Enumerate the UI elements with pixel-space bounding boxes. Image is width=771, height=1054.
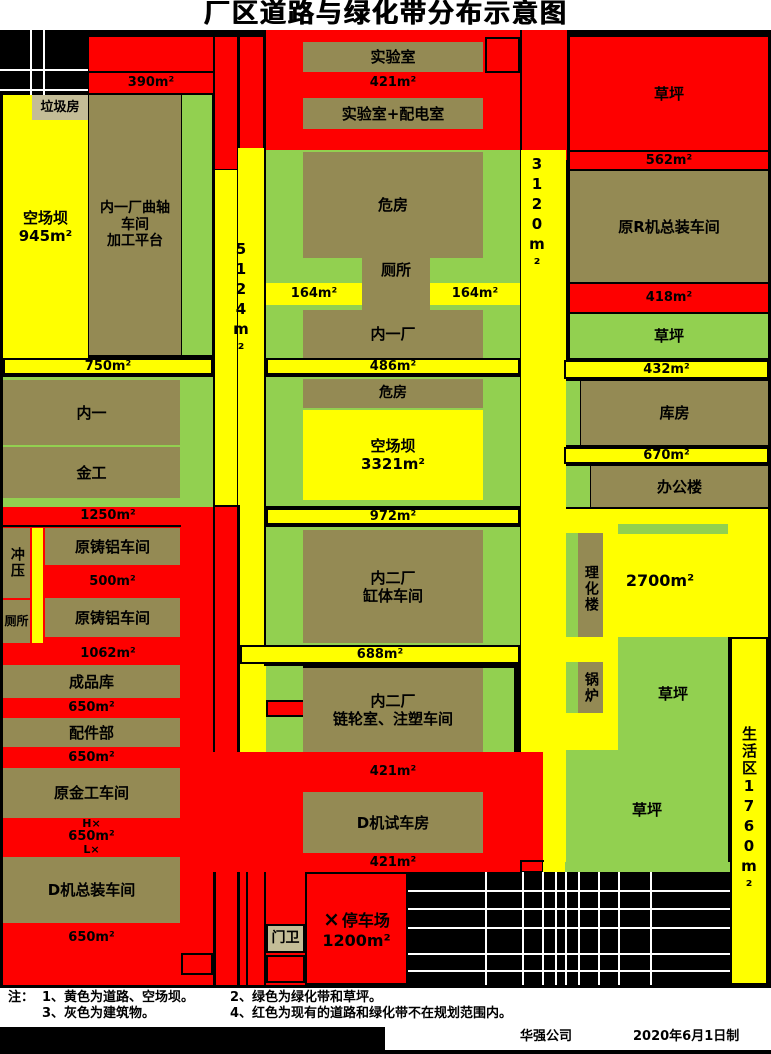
block-caoping-top-red: 草坪 (570, 37, 768, 150)
block-r-assembly-workshop: 原R机总装车间 (570, 171, 768, 282)
green-sliver-kufang (566, 381, 580, 445)
kcb2-area: 3321m² (361, 455, 425, 473)
block-menwei: 门卫 (266, 924, 305, 953)
red-col-1 (215, 37, 237, 169)
road-432: 432m² (564, 360, 769, 379)
yellow-sliver-left (32, 528, 43, 643)
grid-line-v1 (30, 30, 32, 95)
red-block-topleft (89, 37, 213, 71)
road-972: 972m² (266, 508, 520, 525)
parking-vline-6 (578, 872, 580, 985)
factory-layout-diagram: 厂区道路与绿化带分布示意图 390m² 空场坝 945m² 垃圾房 内一厂曲轴 … (0, 0, 771, 1054)
block-chongya: 冲压 (3, 528, 30, 598)
parking-hline-3 (408, 927, 730, 929)
block-weifang-1: 危房 (303, 152, 483, 258)
page-title: 厂区道路与绿化带分布示意图 (0, 1, 771, 29)
road-390: 390m² (89, 73, 213, 93)
lab-divider-line (520, 30, 522, 160)
outlined-red-box-lab (485, 37, 520, 73)
kcb2-name: 空场坝 (370, 437, 415, 455)
block-jingong: 金工 (3, 447, 180, 498)
block-lajifang: 垃圾房 (32, 95, 88, 120)
road-3120-label: 3120m² (524, 165, 550, 265)
block-neiyi: 内一 (3, 380, 180, 445)
parking-vline-2 (522, 872, 524, 985)
road-5124-label: 5124m² (228, 245, 254, 355)
block-yuanjingong: 原金工车间 (3, 768, 180, 818)
quzhou-line1: 内一厂曲轴 (100, 200, 170, 217)
parking-vline-1 (485, 872, 487, 985)
block-zhulv-2: 原铸铝车间 (45, 598, 180, 637)
road-670: 670m² (564, 447, 769, 464)
block-d-assembly: D机总装车间 (3, 857, 180, 923)
road-421-c: 421m² (303, 855, 483, 871)
block-gangti-workshop: 内二厂 缸体车间 (303, 530, 483, 643)
x-mark-icon: × (323, 907, 340, 931)
block-zhulv-1: 原铸铝车间 (45, 528, 180, 565)
road-650-d: 650m² (3, 928, 180, 948)
grid-line-v2 (43, 30, 45, 95)
footer-date: 2020年6月1日制 (633, 1029, 768, 1045)
yard-2700-label: 2700m² (600, 570, 720, 592)
greenbelt-left (182, 95, 212, 355)
grid-line-h1 (0, 69, 88, 71)
block-shenghuoqu: 生活区1760m² (730, 637, 768, 985)
block-neiyichang: 内一厂 (303, 310, 483, 358)
lianlun-line1: 内二厂 (370, 692, 415, 710)
block-guolu: 锅炉 (578, 662, 603, 713)
parking-hline-4 (408, 953, 730, 955)
outlined-red-box-bl (181, 953, 213, 975)
block-quzhou-workshop: 内一厂曲轴 车间 加工平台 (89, 95, 181, 355)
outlined-red-box-menwei (266, 955, 305, 983)
road-1250: 1250m² (3, 507, 213, 525)
road-418: 418m² (570, 284, 768, 312)
road-650-c: 650m² (3, 829, 180, 844)
parking-vline-3 (542, 872, 544, 985)
hx-mark: H× (3, 818, 180, 829)
road-164-left: 164m² (266, 283, 362, 305)
grid-line-h2 (0, 89, 88, 91)
parking-line1: ×停车场 (323, 907, 390, 931)
parking-area: 1200m² (322, 931, 390, 950)
bottom-divider-1 (214, 872, 216, 985)
parking-vline-4 (555, 872, 557, 985)
road-650-a: 650m² (3, 700, 180, 716)
block-chengpinku: 成品库 (3, 665, 180, 698)
gangti-line2: 缸体车间 (363, 587, 423, 605)
parking-vline-7 (598, 872, 600, 985)
parking-name: 停车场 (342, 911, 390, 930)
bottom-divider-3 (246, 872, 248, 985)
outlined-red-box-mid (266, 700, 305, 717)
lx-mark: L× (3, 844, 180, 855)
block-caoping-4: 草坪 (566, 750, 728, 870)
parking-vline-8 (618, 872, 620, 985)
block-parking: ×停车场 1200m² (305, 872, 408, 985)
kongchangba-name: 空场坝 (23, 209, 68, 227)
road-562: 562m² (570, 152, 768, 169)
road-421-b: 421m² (303, 763, 483, 781)
note-prefix: 注： (8, 990, 40, 1006)
parking-hline-1 (408, 890, 730, 892)
block-peijianbu: 配件部 (3, 718, 180, 747)
note-1: 1、黄色为道路、空场坝。 (42, 990, 230, 1006)
road-164-right: 164m² (430, 283, 520, 305)
cesuo-label: 厕所 (362, 258, 430, 282)
block-peidianshi: 实验室+配电室 (303, 98, 483, 129)
block-d-test-house: D机试车房 (303, 792, 483, 853)
parking-vline-9 (650, 872, 652, 985)
red-col-1-lower (215, 507, 237, 985)
road-650-b: 650m² (3, 749, 180, 766)
block-kongchangba-945: 空场坝 945m² (3, 95, 88, 358)
notes-black-corner (0, 1027, 385, 1054)
gangti-line1: 内二厂 (370, 569, 415, 587)
quzhou-line3: 加工平台 (107, 233, 163, 250)
road-500: 500m² (45, 567, 180, 596)
green-sliver-lihua (566, 533, 578, 645)
red-col-2 (240, 37, 263, 148)
note-3: 3、灰色为建筑物。 (42, 1006, 230, 1022)
parking-vline-5 (565, 872, 567, 985)
block-weifang-2: 危房 (303, 379, 483, 408)
note-4: 4、红色为现有的道路和绿化带不在规划范围内。 (230, 1006, 670, 1022)
block-kufang: 库房 (581, 381, 768, 445)
block-caoping-3: 草坪 (618, 637, 728, 750)
road-750: 750m² (3, 358, 213, 375)
parking-hline-5 (408, 970, 730, 972)
footer-company: 华强公司 (520, 1029, 620, 1045)
green-bar-2700 (618, 524, 728, 534)
road-1062: 1062m² (3, 645, 213, 663)
block-shiyanshi: 实验室 (303, 42, 483, 72)
lianlun-green-right (483, 668, 514, 752)
green-strip-parking-top (565, 862, 730, 872)
yellow-sliver-parking (543, 862, 565, 872)
bottom-divider-2 (238, 872, 240, 985)
block-bangonglou: 办公楼 (591, 466, 768, 507)
block-kongchangba-3321: 空场坝 3321m² (303, 410, 483, 500)
lianlun-line2: 链轮室、注塑车间 (333, 710, 453, 728)
road-421-top: 421m² (303, 74, 483, 92)
kongchangba-area: 945m² (19, 227, 73, 245)
green-sliver-guolu (566, 662, 578, 713)
note-2: 2、绿色为绿化带和草坪。 (230, 990, 460, 1006)
block-cesuo-left: 厕所 (3, 600, 30, 643)
road-688: 688m² (240, 645, 520, 664)
block-lianlun-workshop: 内二厂 链轮室、注塑车间 (303, 668, 483, 752)
road-486: 486m² (266, 358, 520, 375)
green-sliver-bangong (566, 466, 590, 507)
parking-hline-2 (408, 908, 730, 910)
quzhou-line2: 车间 (121, 217, 149, 234)
block-caoping-2: 草坪 (570, 314, 768, 358)
